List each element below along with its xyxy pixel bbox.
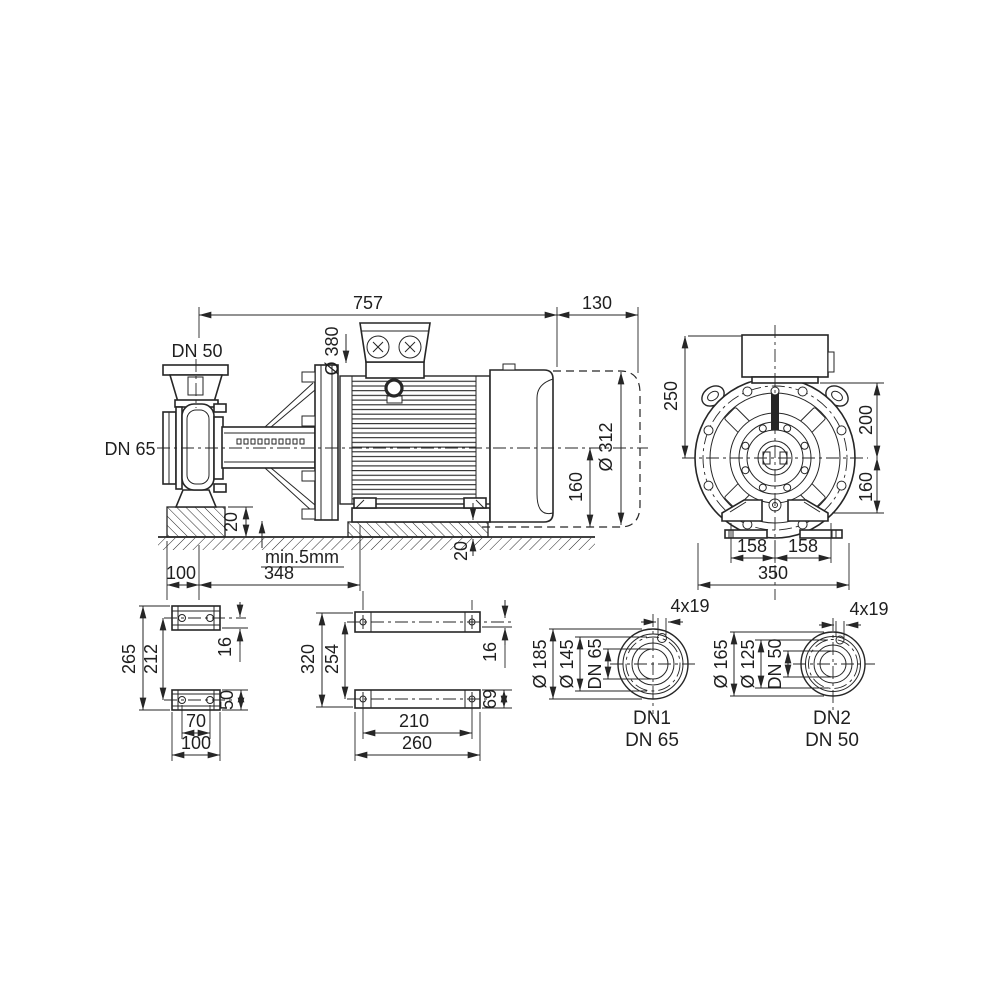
- label-discharge-port: DN 50: [171, 341, 222, 361]
- dn1-size-label: DN 65: [625, 730, 679, 751]
- dim-dismantling-space: 130: [557, 293, 638, 373]
- dim-motor-rail-hole-spacing: 254: [322, 622, 345, 699]
- motor-rail-upper: [347, 591, 512, 632]
- motor-assembly: [340, 323, 640, 527]
- dim-overall-width-text: 350: [758, 563, 788, 583]
- dim-box-height-text: 200: [856, 405, 876, 435]
- terminal-box-screw: [399, 336, 421, 358]
- dn2-name-label: DN2: [813, 708, 851, 729]
- terminal-box-screw: [367, 336, 389, 358]
- dim-pump-foot-hole-spacing: 212: [141, 618, 163, 700]
- dim-motor-foundation-height-text: 20: [451, 541, 471, 561]
- dim-dismantling-space-text: 130: [582, 293, 612, 313]
- dn1-name-label: DN1: [633, 708, 671, 729]
- dim-pump-foot-height-text: 50: [217, 690, 237, 710]
- dim-motor-rail-hole-spacing-text: 254: [322, 644, 342, 674]
- dim-flange-diameter: Ø 380: [322, 326, 346, 375]
- dim-pump-foot-thickness-text: 16: [215, 637, 235, 657]
- dim-pump-foot-width-text: 100: [181, 733, 211, 753]
- dim-dn2-outer-diameter-text: Ø 165: [711, 639, 731, 688]
- pump-foot-upper: [164, 606, 246, 630]
- dim-motor-diameter: Ø 312: [596, 372, 621, 525]
- bearing-bracket: [222, 365, 338, 520]
- pump-dimensional-drawing: 757 130 DN 50 DN 65 Ø 380 20 min.5mm: [0, 0, 1000, 1000]
- suction-port-text: DN 65: [104, 439, 155, 459]
- dim-dn1-outer-diameter-text: Ø 185: [530, 639, 550, 688]
- dim-overall-width: 350: [698, 543, 849, 590]
- lifting-eye: [386, 380, 402, 403]
- motor-foot-view: 320 254 16 69 210 260: [298, 591, 512, 761]
- dim-shaft-height-side: 160: [566, 448, 590, 527]
- pump-foot-view: 265 212 16 50 70 100: [119, 602, 248, 761]
- dim-pump-foundation-height: 20: [221, 507, 253, 537]
- dim-dn1-bolt-holes-text: 4x19: [670, 596, 709, 616]
- dim-height-above-center-text: 250: [661, 381, 681, 411]
- dim-motor-diameter-text: Ø 312: [596, 422, 616, 471]
- dim-dn2-bolt-circle-text: Ø 125: [738, 639, 758, 688]
- terminal-box: [360, 323, 430, 378]
- dim-dn1-bore-text: DN 65: [585, 638, 605, 689]
- dim-motor-rail-thickness-text: 16: [480, 642, 500, 662]
- dim-foot-distance-text: 348: [264, 563, 294, 583]
- dim-pump-foot-hole-width-text: 70: [186, 711, 206, 731]
- fan-cover: [490, 364, 553, 522]
- dim-dn1-bolt-circle-text: Ø 145: [557, 639, 577, 688]
- dim-motor-rail-width-text: 260: [402, 733, 432, 753]
- discharge-port-text: DN 50: [171, 341, 222, 361]
- dimensional-drawing-page: 757 130 DN 50 DN 65 Ø 380 20 min.5mm: [0, 0, 1000, 1000]
- dim-shaft-height-side-text: 160: [566, 472, 586, 502]
- terminal-box-front: [742, 335, 834, 383]
- dn2-size-label: DN 50: [805, 730, 859, 751]
- dim-dn2-bore-text: DN 50: [765, 638, 785, 689]
- dim-motor-rail-height: 69: [480, 689, 512, 709]
- dim-foot-offset-text: 100: [166, 563, 196, 583]
- dim-foot-right-text: 158: [788, 536, 818, 556]
- dim-shaft-height-front-text: 160: [856, 472, 876, 502]
- dim-motor-rail-overall-text: 320: [298, 644, 318, 674]
- dim-motor-rail-height-text: 69: [480, 689, 500, 709]
- flange-dn2-view: 4x19 Ø 165 Ø 125 DN 50 DN2 DN 50: [711, 599, 889, 751]
- side-view: 757 130 DN 50 DN 65 Ø 380 20 min.5mm: [104, 293, 648, 600]
- dim-motor-rail-thickness: 16: [480, 600, 512, 668]
- flange-dn1-view: 4x19 Ø 185 Ø 145 DN 65 DN1 DN 65: [530, 596, 710, 751]
- dim-flange-diameter-text: Ø 380: [322, 326, 342, 375]
- dim-dn2-bolt-holes-text: 4x19: [849, 599, 888, 619]
- label-suction-port: DN 65: [104, 439, 155, 459]
- dim-pump-foot-height: 50: [217, 690, 248, 710]
- front-view: 250 200 160 158 158 350: [661, 325, 884, 600]
- dim-motor-rail-hole-width-text: 210: [399, 711, 429, 731]
- dim-foot-left-text: 158: [737, 536, 767, 556]
- dim-pump-foot-hole-spacing-text: 212: [141, 644, 161, 674]
- dim-total-length-text: 757: [353, 293, 383, 313]
- motor-rail-lower: [347, 690, 488, 708]
- pump-assembly: [163, 365, 228, 507]
- dim-pump-foundation-height-text: 20: [221, 512, 241, 532]
- dim-pump-foot-overall-text: 265: [119, 644, 139, 674]
